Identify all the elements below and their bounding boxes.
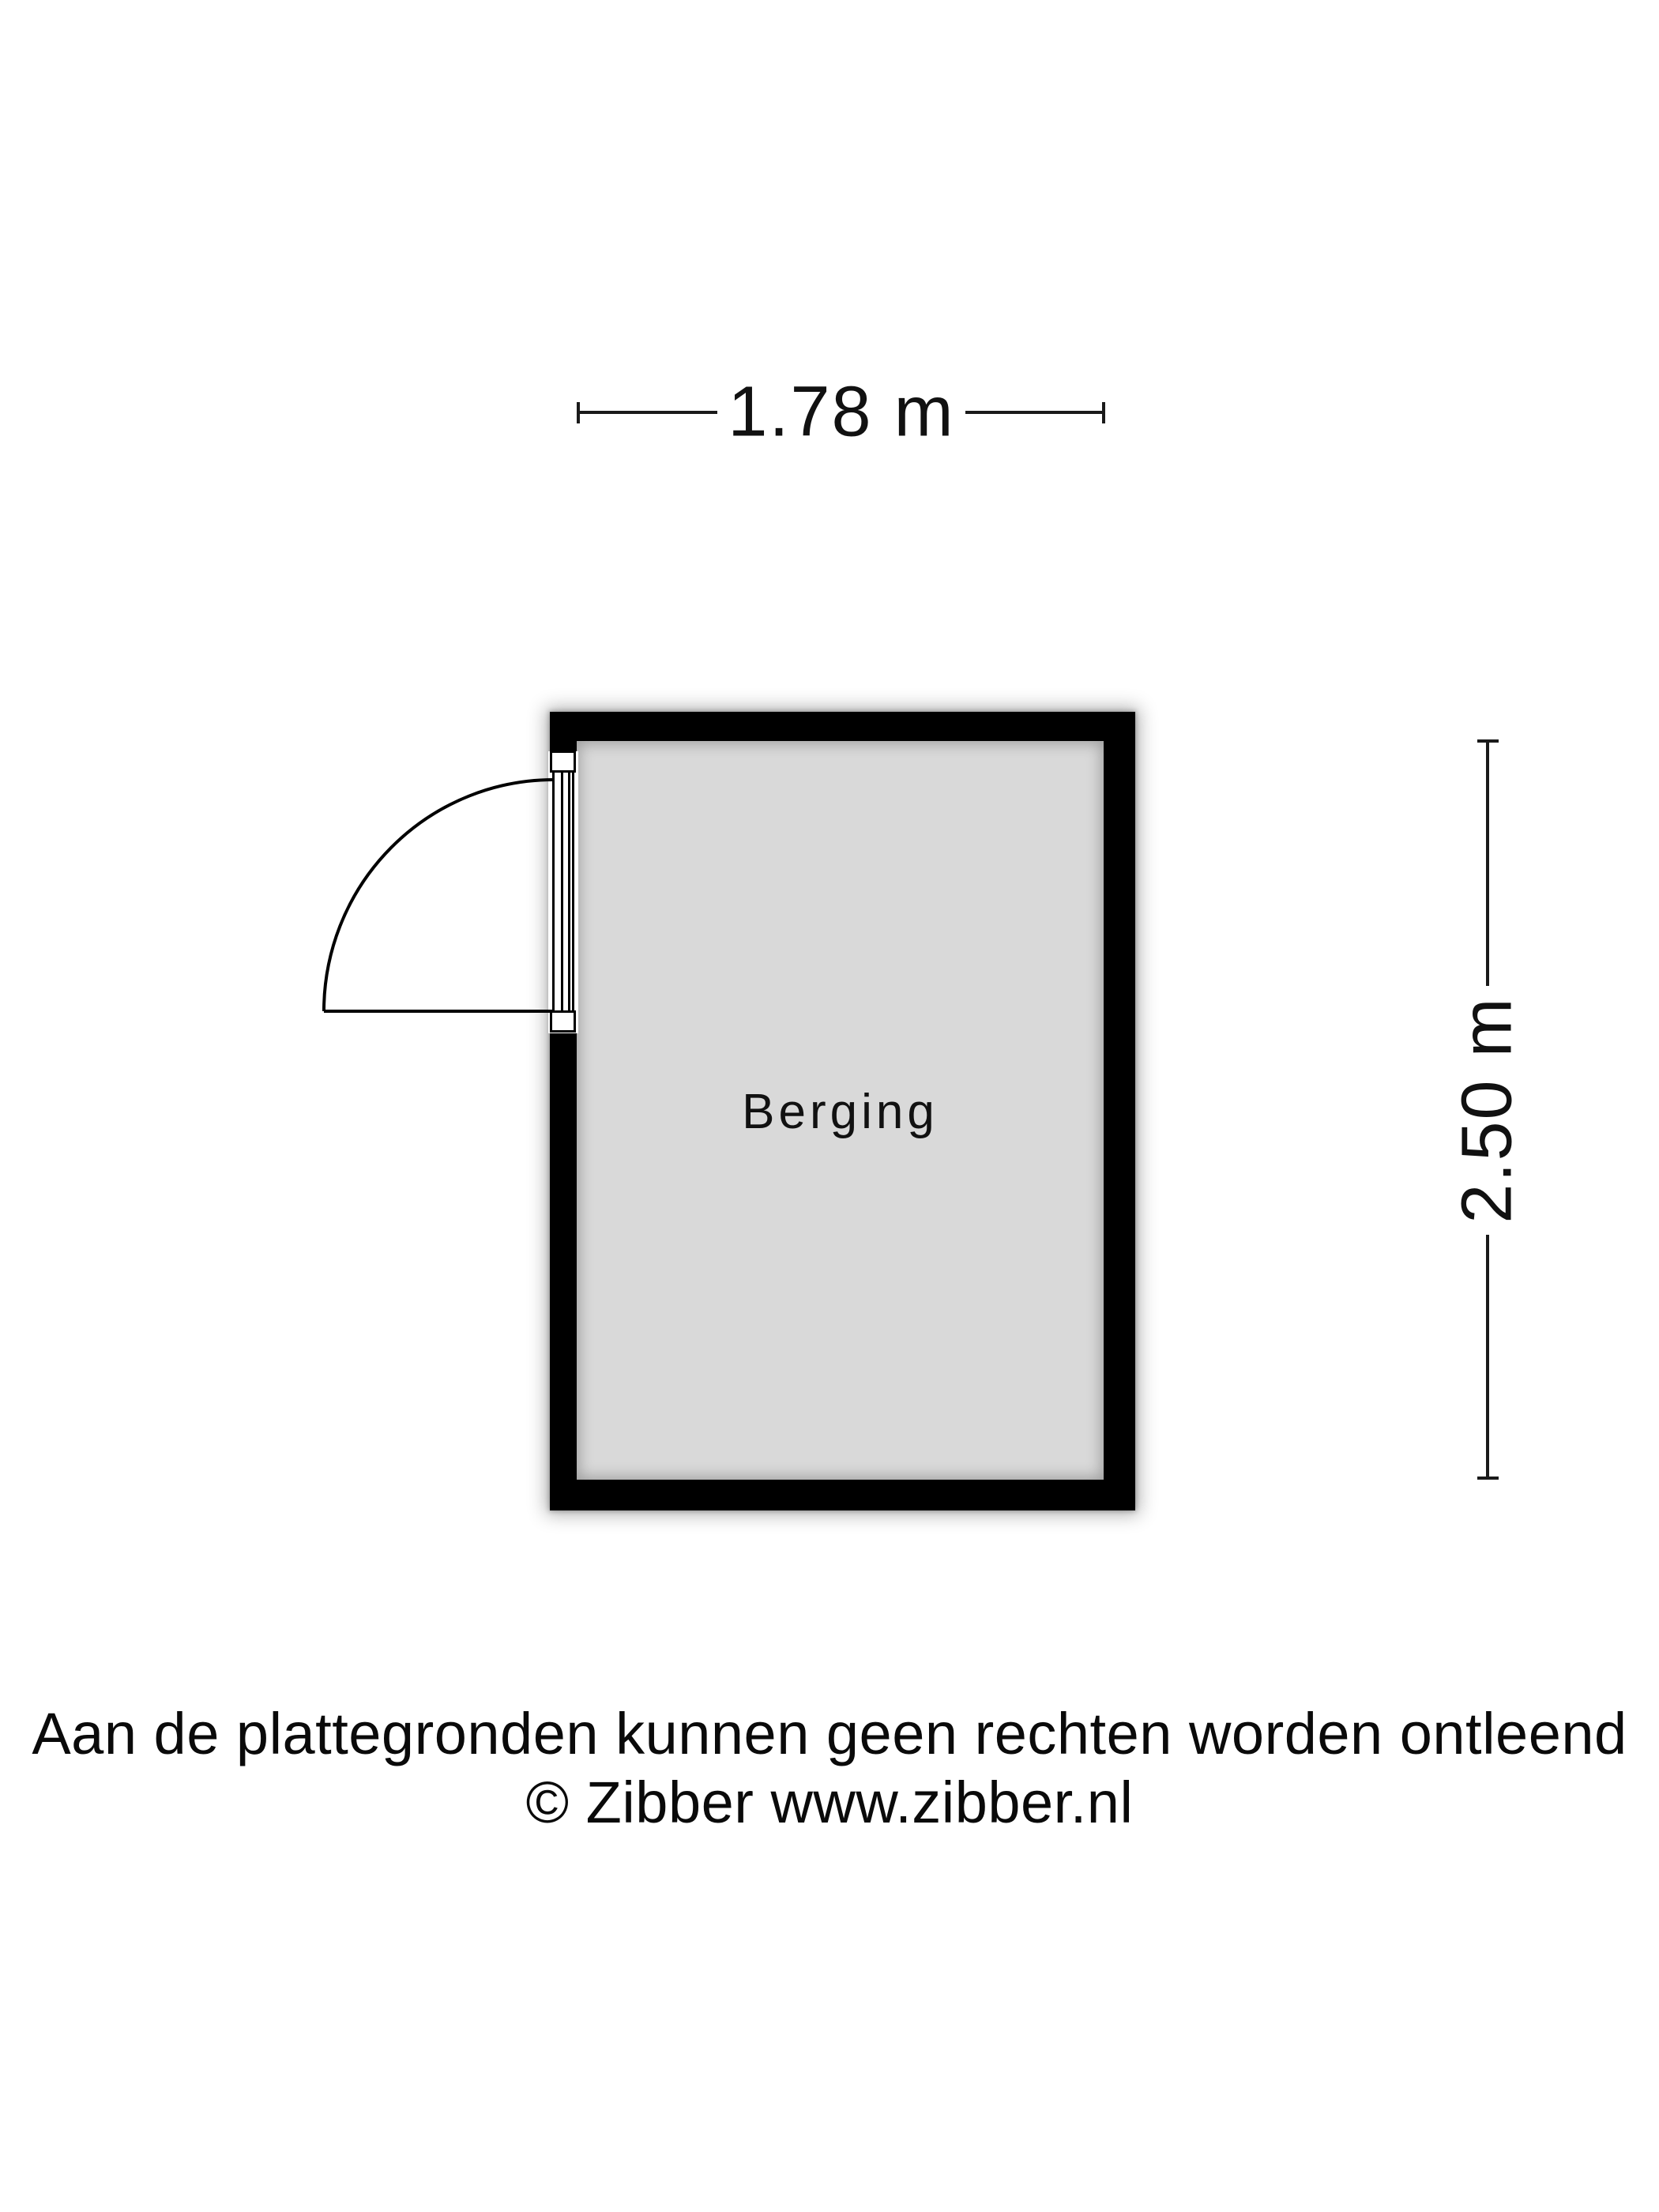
height-dimension-line-top	[1486, 741, 1489, 986]
footer: Aan de plattegronden kunnen geen rechten…	[0, 1700, 1659, 1837]
height-dimension-label: 2.50 m	[1447, 996, 1529, 1223]
width-dimension-tick-right	[1102, 402, 1105, 423]
room-floor: Berging	[577, 741, 1104, 1480]
height-dimension-tick-top	[1477, 739, 1499, 743]
copyright-text: © Zibber www.zibber.nl	[0, 1769, 1659, 1838]
width-dimension-line-right	[965, 411, 1104, 414]
height-dimension-line-bottom	[1486, 1235, 1489, 1480]
room-label: Berging	[742, 1084, 939, 1140]
height-dimension-tick-bottom	[1477, 1477, 1499, 1480]
door-jamb-bottom	[550, 1010, 576, 1033]
width-dimension-line-left	[578, 411, 717, 414]
door-leaf	[552, 770, 574, 1013]
disclaimer-text: Aan de plattegronden kunnen geen rechten…	[0, 1700, 1659, 1769]
floorplan-canvas: 1.78 m 2.50 m Berging Aan de plattegrond…	[0, 0, 1659, 2212]
width-dimension-tick-left	[577, 402, 580, 423]
width-dimension-label: 1.78 m	[728, 372, 954, 453]
door-jamb-top	[550, 750, 576, 773]
door-swing-arc	[324, 780, 554, 1011]
